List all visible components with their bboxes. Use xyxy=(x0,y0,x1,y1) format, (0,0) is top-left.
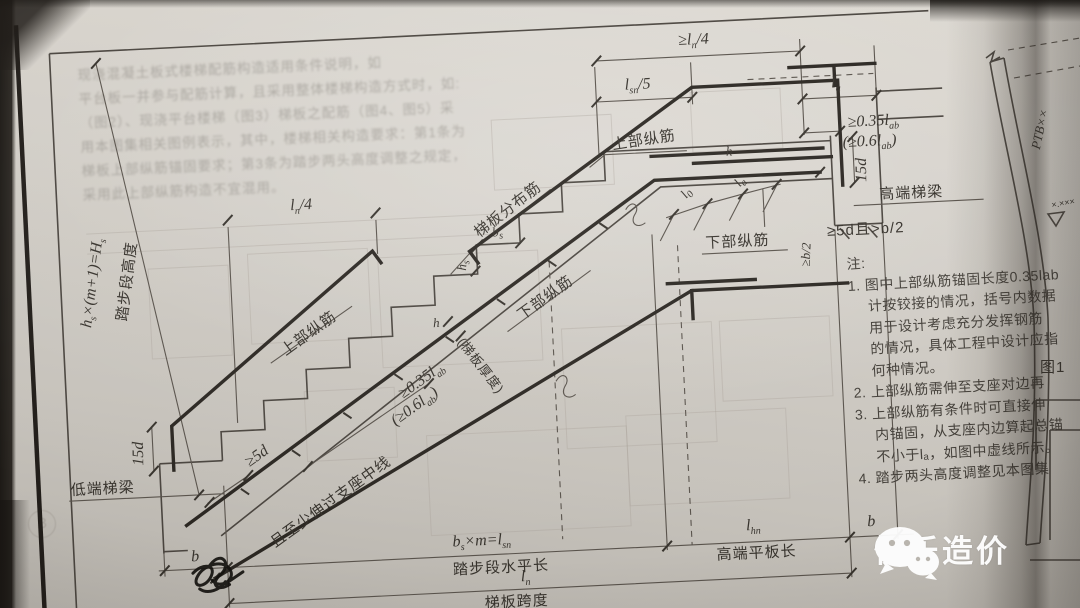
dim-lsn5: lsn/5 xyxy=(624,75,651,96)
label-bottom-bars-slope: 下部纵筋 xyxy=(515,272,577,323)
label-anchor-b2-rotated: ≥b/2 xyxy=(798,242,814,267)
dim-hs: hs xyxy=(454,260,472,271)
dim-hs-formula: hs×(m+1)=Hs xyxy=(78,237,109,329)
label-anchor-midline: 且至少伸过支座中线 xyxy=(267,453,394,551)
label-level-mark: ×.××× xyxy=(1051,196,1076,210)
label-ptb: PTB×× xyxy=(1028,108,1051,152)
dim-h-slab: h xyxy=(433,315,440,330)
bleedthrough-grid xyxy=(81,86,839,552)
watermark: 快乐造价 xyxy=(874,526,1010,571)
low-end-top-bar xyxy=(164,251,391,470)
dimension-labels: ≥ln/4 lsn/5 la ≥0.35lab (≥0.6lab) 15d 15… xyxy=(110,19,959,558)
label-high-end-beam: 高端梯梁 xyxy=(879,183,944,203)
label-platform-length: 高端平板长 xyxy=(716,542,797,564)
label-slab-thickness: (梯板厚度) xyxy=(455,335,508,397)
dim-15d-right: 15d xyxy=(853,157,870,182)
dim-l0: l0 xyxy=(677,185,696,203)
dim-b-left: b xyxy=(191,548,200,565)
dim-ln4-top: ≥ln/4 xyxy=(678,30,710,51)
book-photo: 现浇混凝土板式楼梯配筋构造适用条件说明，如 平台板一并参与配筋计算，且采用整体楼… xyxy=(0,0,1080,608)
dim-h-platform: h xyxy=(726,143,733,158)
notes-block: 注: 1. 图中上部纵筋锚固长度0.35lab 计按铰接的情况，括号内数据 用于… xyxy=(846,243,1059,490)
label-top-bars-low: 上部纵筋 xyxy=(278,308,340,359)
dim-ln4-left: ln/4 xyxy=(290,196,313,217)
label-slab-span: 梯板跨度 xyxy=(484,591,549,608)
label-distribution-bars: 梯板分布筋 xyxy=(471,178,545,241)
dimension-ticks xyxy=(91,20,905,608)
dim-15d-left: 15d xyxy=(130,441,147,466)
dim-lab035-high: ≥0.35lab xyxy=(847,111,899,133)
rebar-labels: 上部纵筋 上部纵筋 梯板分布筋 下部纵筋 下部纵筋 l0 la h h (梯板厚… xyxy=(268,123,776,408)
dim-lab06-high: (≥0.6lab) xyxy=(842,131,897,154)
label-bottom-bars-platform: 下部纵筋 xyxy=(705,232,770,252)
label-anchor-5d-b2: ≥5d且>b/2 xyxy=(827,219,905,240)
dim-lhn: lhn xyxy=(746,517,761,538)
label-run-length: 踏步段水平长 xyxy=(453,557,550,579)
label-low-end-beam: 低端梯梁 xyxy=(70,479,135,499)
wechat-icon xyxy=(874,526,940,580)
